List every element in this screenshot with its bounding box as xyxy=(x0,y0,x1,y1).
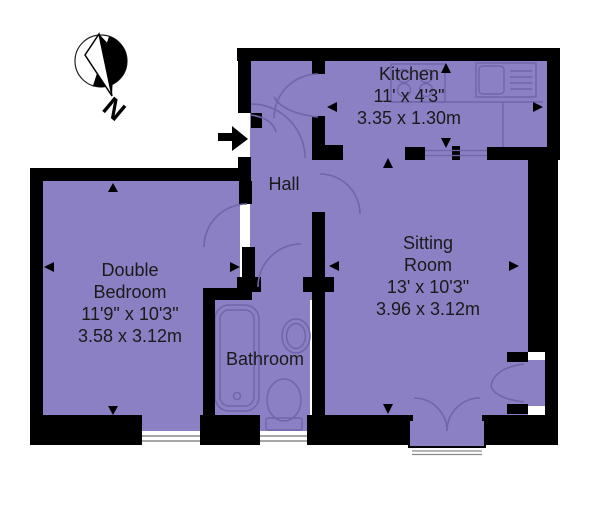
kitchen-name: Kitchen xyxy=(357,63,461,85)
wall xyxy=(30,168,43,445)
wall xyxy=(312,212,325,445)
wall xyxy=(312,61,325,74)
sitting-room-metric: 3.96 x 3.12m xyxy=(376,298,480,320)
bedroom-label: Double Bedroom 11'9" x 10'3" 3.58 x 3.12… xyxy=(78,259,182,347)
sitting-room-name-2: Room xyxy=(376,254,480,276)
floor-plan: Kitchen 11' x 4'3" 3.35 x 1.30m Sitting … xyxy=(0,0,600,505)
wall xyxy=(238,61,251,113)
hall-name: Hall xyxy=(268,173,299,195)
bedroom-imperial: 11'9" x 10'3" xyxy=(78,303,182,325)
bedroom-name-1: Double xyxy=(78,259,182,281)
wall xyxy=(237,48,560,61)
bedroom-metric: 3.58 x 3.12m xyxy=(78,325,182,347)
sitting-room-name-1: Sitting xyxy=(376,232,480,254)
wall xyxy=(30,168,250,181)
wall xyxy=(507,352,528,362)
wall xyxy=(487,147,547,160)
wall xyxy=(30,415,142,445)
wall xyxy=(307,415,413,445)
wall xyxy=(312,145,343,160)
bathroom-window xyxy=(260,431,307,445)
step-sill-lines xyxy=(412,451,482,455)
wall xyxy=(507,404,528,414)
bedroom-name-2: Bedroom xyxy=(78,281,182,303)
entrance-arrow-icon xyxy=(218,126,248,151)
wall xyxy=(482,415,558,445)
wall xyxy=(545,352,558,415)
kitchen-metric: 3.35 x 1.30m xyxy=(357,107,461,129)
wall xyxy=(405,147,425,160)
wall xyxy=(547,48,560,160)
bathroom-label: Bathroom xyxy=(226,348,304,370)
wall xyxy=(242,247,255,280)
sitting-room-label: Sitting Room 13' x 10'3" 3.96 x 3.12m xyxy=(376,232,480,320)
wall xyxy=(239,181,252,204)
bay-alcove-floor xyxy=(527,360,545,406)
compass-rose-icon xyxy=(75,34,134,96)
kitchen-label: Kitchen 11' x 4'3" 3.35 x 1.30m xyxy=(357,63,461,129)
wall xyxy=(528,160,558,352)
wall xyxy=(452,146,460,160)
wall xyxy=(200,415,260,445)
kitchen-imperial: 11' x 4'3" xyxy=(357,85,461,107)
wall xyxy=(303,277,334,292)
wall xyxy=(312,116,325,147)
floor-plan-drawing xyxy=(0,0,600,505)
bathroom-name: Bathroom xyxy=(226,348,304,370)
hall-label: Hall xyxy=(268,173,299,195)
sitting-room-imperial: 13' x 10'3" xyxy=(376,276,480,298)
bedroom-window xyxy=(142,431,205,445)
